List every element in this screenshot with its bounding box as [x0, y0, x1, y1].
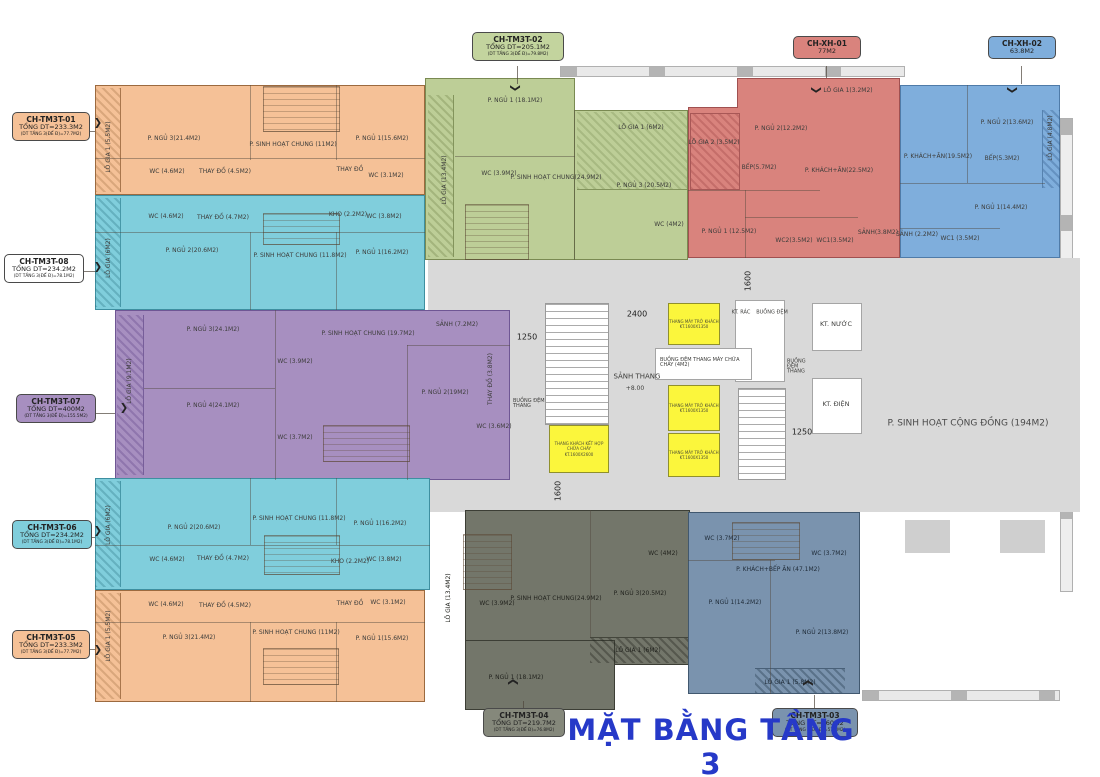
room-label: P. SINH HOẠT CHUNG (11M2) — [249, 142, 336, 148]
unit-floor-area: (DT TẦNG 3(ĐẾ Đ)=155.5M2) — [19, 414, 93, 420]
fire-elevator-box: THANG KHÁCH KẾT HỢP CHỮA CHÁY KT.1600X26… — [549, 425, 609, 473]
entry-arrow: ❯ — [811, 86, 822, 94]
room-label: SẢNH(3.8M2) — [858, 230, 898, 236]
stairs — [263, 648, 339, 685]
room-label: P. SINH HOẠT CHUNG (11M2) — [252, 630, 339, 636]
core-label-lobby: SẢNH THANG — [614, 374, 661, 381]
room-label: WC (3.1M2) — [370, 600, 405, 606]
elevator-size: KT.1600X1350 — [680, 324, 709, 329]
dimension-label: 2400 — [627, 310, 647, 319]
room-label: WC (3.7M2) — [811, 551, 846, 557]
room-label: P. NGỦ 3(24.1M2) — [187, 327, 240, 333]
core-label-level: +8.00 — [626, 386, 644, 392]
unit-total-area: TỔNG DT=219.7M2 — [486, 720, 562, 728]
core-label-buffer-right: BUỒNG ĐỆM THANG — [787, 360, 817, 375]
room-label: LÔ GIA 1 (5.5M2) — [106, 610, 112, 661]
room-label: THAY ĐỒ — [337, 601, 364, 607]
room-label: SẢNH (2.2M2) — [896, 232, 938, 238]
stairs — [463, 534, 512, 590]
elevator-box: THANG MÁY TRỞ KHÁCH KT.1600X1350 — [668, 385, 720, 431]
room-label: P. SINH HOẠT CHUNG(24.9M2) — [510, 596, 601, 602]
unit-floor-area: (DT TẦNG 3(ĐẾ Đ)=79.8M2) — [475, 52, 561, 58]
core-label-trash: KT. RÁC — [732, 311, 751, 316]
legend-box-ch-tm3t-06: CH-TM3T-06 TỔNG DT=234.2M2 (DT TẦNG 3(ĐẾ… — [12, 520, 92, 549]
room-label: LÔ GIA 1(3.2M2) — [823, 88, 872, 94]
room-label: P. NGỦ 3(20.5M2) — [614, 591, 667, 597]
room-label: WC (3.8M2) — [366, 557, 401, 563]
room-label: P. NGỦ 3(21.4M2) — [148, 136, 201, 142]
dimension-label: 1250 — [792, 428, 812, 437]
room-label: THAY ĐỒ (4.5M2) — [199, 603, 251, 609]
stairs — [732, 522, 800, 560]
room-label: P. NGỦ 2(13.6M2) — [981, 120, 1034, 126]
wall-notch — [688, 78, 738, 108]
room-label: P. KHÁCH+BẾP ĂN (47.1M2) — [736, 567, 820, 573]
room-label: P. NGỦ 3(21.4M2) — [163, 635, 216, 641]
room-label: WC (4.6M2) — [149, 557, 184, 563]
room-label: P. NGỦ 1(14.2M2) — [709, 600, 762, 606]
room-label: P. NGỦ 1(15.6M2) — [356, 136, 409, 142]
unit-total-area: 77M2 — [796, 48, 858, 56]
core-label-electric: KT. ĐIỆN — [822, 401, 849, 408]
room-label: LÔ GIA 1 (5.5M2) — [106, 121, 112, 172]
entry-arrow: ❯ — [94, 645, 102, 656]
entry-arrow: ❯ — [803, 679, 814, 687]
room-label: LÔ GIA (13.4M2) — [446, 573, 452, 622]
room-label: BẾP(5.7M2) — [742, 165, 777, 171]
room-label: P. KHÁCH+ĂN(22.5M2) — [805, 168, 873, 174]
room-label: LÔ GIA (6M2) — [106, 238, 112, 278]
room-label: LÔ GIA 1 (6M2) — [618, 125, 663, 131]
legend-box-ch-tm3t-02: CH-TM3T-02 TỔNG DT=205.1M2 (DT TẦNG 3(ĐẾ… — [472, 32, 564, 61]
room-label: P. KHÁCH+ĂN(19.5M2) — [904, 154, 972, 160]
unit-floor-area: (DT TẦNG 3(ĐẾ Đ)=78.1M2) — [15, 540, 89, 546]
room-label: P. NGỦ 1(16.2M2) — [356, 250, 409, 256]
room-label: P. NGỦ 2(20.6M2) — [166, 248, 219, 254]
entry-arrow: ❯ — [94, 262, 102, 273]
entry-arrow: ❯ — [508, 678, 519, 686]
room-label: P. NGỦ 2(19M2) — [421, 390, 468, 396]
elevator-size: KT.1600X1350 — [680, 455, 709, 460]
room-label: THAY ĐỒ (4.7M2) — [197, 215, 249, 221]
room-label: WC (3.1M2) — [368, 173, 403, 179]
room-label: LÔ GIA (6M2) — [106, 505, 112, 545]
room-label: P. NGỦ 2(20.6M2) — [168, 525, 221, 531]
room-label: WC (3.9M2) — [277, 359, 312, 365]
room-label: WC (3.7M2) — [704, 536, 739, 542]
unit-total-area: TỔNG DT=205.1M2 — [475, 44, 561, 52]
room-label: P. NGỦ 1(16.2M2) — [354, 521, 407, 527]
room-label: P. NGỦ 1 (12.5M2) — [702, 229, 757, 235]
room-label: P. NGỦ 2(12.2M2) — [755, 126, 808, 132]
elevator-size: KT.1600X1350 — [680, 408, 709, 413]
floor-plan-title: MẶT BẰNG TẦNG 3 — [563, 713, 859, 777]
unit-total-area: TỔNG DT=233.3M2 — [15, 124, 87, 132]
unit-ch-tm3t-06 — [95, 478, 430, 590]
legend-box-ch-tm3t-01: CH-TM3T-01 TỔNG DT=233.3M2 (DT TẦNG 3(ĐẾ… — [12, 112, 90, 141]
legend-box-ch-tm3t-05: CH-TM3T-05 TỔNG DT=233.3M2 (DT TẦNG 3(ĐẾ… — [12, 630, 90, 659]
room-label: LÔ GIA 2 (3.5M2) — [688, 140, 739, 146]
wall-strip — [560, 66, 905, 77]
core-label-buffer-left: BUỒNG ĐỆM THANG — [513, 399, 545, 409]
room-label: P. SINH HOẠT CHUNG (19.7M2) — [321, 331, 414, 337]
elevator-box: THANG MÁY TRỞ KHÁCH KT.1600X1350 — [668, 303, 720, 345]
room-label: WC2(3.5M2) — [775, 238, 812, 244]
room-label: P. SINH HOẠT CHUNG (11.8M2) — [252, 516, 345, 522]
unit-total-area: TỔNG DT=400M2 — [19, 406, 93, 414]
core-label-water: KT. NƯỚC — [820, 321, 852, 328]
unit-total-area: TỔNG DT=234.2M2 — [7, 266, 81, 274]
dimension-label: 1600 — [554, 481, 563, 501]
unit-total-area: 63.8M2 — [991, 48, 1053, 56]
room-label: WC (4M2) — [648, 551, 678, 557]
stairs — [264, 535, 340, 575]
room-label: P. NGỦ 3 (20.5M2) — [617, 183, 672, 189]
wall-strip — [862, 690, 1060, 701]
room-label: P. NGỦ 2(13.8M2) — [796, 630, 849, 636]
unit-total-area: TỔNG DT=234.2M2 — [15, 532, 89, 540]
stairs — [263, 86, 340, 132]
room-label: LÔ GIA (9.1M2) — [127, 358, 133, 403]
room-label: KHO (2.2M2) — [331, 559, 369, 565]
room-label: BẾP(5.3M2) — [985, 156, 1020, 162]
room-label: WC (3.8M2) — [366, 214, 401, 220]
logia-hatch — [690, 113, 740, 190]
elevator-label: THANG KHÁCH KẾT HỢP CHỮA CHÁY — [550, 441, 608, 451]
room-label: P. NGỦ 1(14.4M2) — [975, 205, 1028, 211]
room-label: P. NGỦ 4(24.1M2) — [187, 403, 240, 409]
unit-floor-area: (DT TẦNG 3(ĐẾ Đ)=78.1M2) — [7, 274, 81, 280]
legend-box-ch-tm3t-08: CH-TM3T-08 TỔNG DT=234.2M2 (DT TẦNG 3(ĐẾ… — [4, 254, 84, 283]
room-label: P. SINH HOẠT CHUNG(24.9M2) — [510, 175, 601, 181]
core-label-fire-lobby: BUỒNG ĐỆM THANG MÁY CHỮA CHÁY (4M2) — [660, 358, 746, 368]
room-label: LÔ GIA (4.8M2) — [1048, 115, 1054, 160]
entry-arrow: ❯ — [510, 84, 521, 92]
room-label: SẢNH (7.2M2) — [436, 322, 478, 328]
room-label: P. NGỦ 1 (18.1M2) — [488, 98, 543, 104]
dimension-label: 1600 — [744, 271, 753, 291]
core-staircase — [545, 303, 609, 425]
unit-total-area: TỔNG DT=233.3M2 — [15, 642, 87, 650]
legend-box-ch-xh-02: CH-XH-02 63.8M2 — [988, 36, 1056, 59]
room-label: P. NGỦ 1(15.6M2) — [356, 636, 409, 642]
room-label: WC (4.6M2) — [148, 602, 183, 608]
room-label: WC (3.6M2) — [476, 424, 511, 430]
entry-arrow: ❯ — [94, 526, 102, 537]
entry-arrow: ❯ — [120, 403, 128, 414]
floor-plan: THANG MÁY TRỞ KHÁCH KT.1600X1350 THANG M… — [0, 0, 1100, 777]
room-label: THAY ĐỒ (4.5M2) — [199, 169, 251, 175]
unit-ch-tm3t-05 — [95, 590, 425, 702]
community-room-label: P. SINH HOẠT CỘNG ĐỒNG (194M2) — [887, 420, 1048, 429]
room-label: WC1 (3.5M2) — [940, 236, 979, 242]
legend-box-ch-tm3t-04: CH-TM3T-04 TỔNG DT=219.7M2 (DT TẦNG 3(ĐẾ… — [483, 708, 565, 737]
unit-floor-area: (DT TẦNG 3(ĐẾ Đ)=77.7M2) — [15, 132, 87, 138]
column-block — [1000, 520, 1045, 553]
stairs — [323, 425, 410, 462]
entry-arrow: ❯ — [94, 118, 102, 129]
unit-floor-area: (DT TẦNG 3(ĐẾ Đ)=77.7M2) — [15, 650, 87, 656]
room-label: P. SINH HOẠT CHUNG (11.8M2) — [253, 253, 346, 259]
room-label: WC (3.7M2) — [277, 435, 312, 441]
core-staircase — [738, 388, 786, 480]
elevator-box: THANG MÁY TRỞ KHÁCH KT.1600X1350 — [668, 433, 720, 477]
room-label: THAY ĐỒ — [337, 167, 364, 173]
room-label: WC (3.9M2) — [479, 601, 514, 607]
stairs — [465, 204, 529, 260]
unit-floor-area: (DT TẦNG 3(ĐẾ Đ)=76.8M2) — [486, 728, 562, 734]
room-label: THAY ĐỒ (3.8M2) — [488, 353, 494, 405]
elevator-size: KT.1600X2600 — [565, 452, 594, 457]
core-label-buffer: BUỒNG ĐỆM — [756, 311, 788, 316]
room-label: LÔ GIA (13.4M2) — [442, 155, 448, 204]
legend-box-ch-xh-01: CH-XH-01 77M2 — [793, 36, 861, 59]
entry-arrow: ❯ — [1007, 86, 1018, 94]
room-label: LÔ GIA 1 (6M2) — [615, 648, 660, 654]
room-label: WC (4.6M2) — [148, 214, 183, 220]
room-label: WC1(3.5M2) — [816, 238, 853, 244]
legend-box-ch-tm3t-07: CH-TM3T-07 TỔNG DT=400M2 (DT TẦNG 3(ĐẾ Đ… — [16, 394, 96, 423]
room-label: WC (4.6M2) — [149, 169, 184, 175]
column-block — [905, 520, 950, 553]
room-label: THAY ĐỒ (4.7M2) — [197, 556, 249, 562]
dimension-label: 1250 — [517, 333, 537, 342]
room-label: WC (4M2) — [654, 222, 684, 228]
room-label: KHO (2.2M2) — [329, 212, 367, 218]
